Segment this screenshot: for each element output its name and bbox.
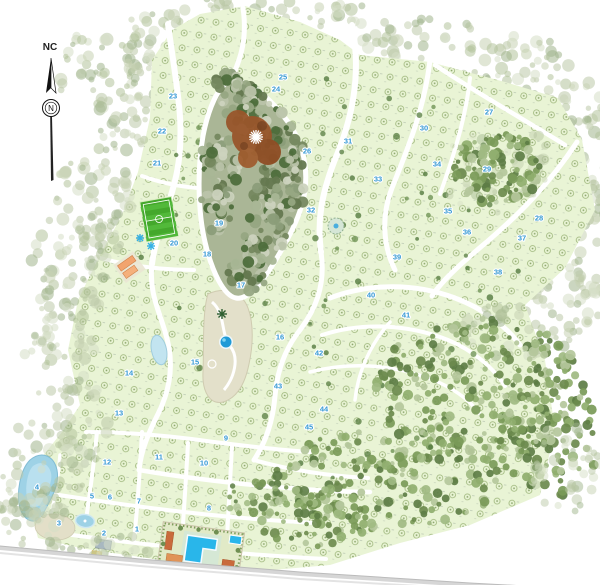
block-number-label: 15 bbox=[191, 358, 199, 367]
block-number-label: 20 bbox=[170, 239, 178, 248]
block-number-label: 34 bbox=[433, 160, 442, 169]
block-number-label: 28 bbox=[535, 214, 543, 223]
block-number-label: 44 bbox=[320, 405, 329, 414]
block-number-label: 11 bbox=[155, 453, 163, 462]
block-number-label: 6 bbox=[108, 493, 112, 502]
block-number-label: 19 bbox=[215, 219, 223, 228]
block-number-label: 26 bbox=[303, 147, 311, 156]
kids-pool bbox=[229, 535, 242, 545]
block-number-label: 25 bbox=[279, 73, 287, 82]
block-number-label: 40 bbox=[367, 291, 375, 300]
block-number-label: 7 bbox=[137, 497, 141, 506]
block-number-label: 42 bbox=[315, 349, 323, 358]
block-number-label: 2 bbox=[102, 529, 106, 538]
block-number-label: 5 bbox=[90, 492, 94, 501]
block-number-label: 21 bbox=[153, 159, 161, 168]
compass-label: NC bbox=[43, 42, 57, 53]
masterplan-sheet: 1234567891011121314151617181920212223242… bbox=[0, 0, 600, 585]
block-number-label: 31 bbox=[344, 137, 352, 146]
block-number-label: 36 bbox=[463, 228, 471, 237]
block-number-label: 33 bbox=[374, 175, 382, 184]
block-number-label: 13 bbox=[115, 409, 123, 418]
block-number-label: 38 bbox=[494, 268, 502, 277]
block-number-label: 30 bbox=[420, 124, 428, 133]
block-number-label: 12 bbox=[103, 458, 111, 467]
block-number-label: 41 bbox=[402, 311, 410, 320]
palm-icon bbox=[217, 309, 227, 319]
block-number-label: 14 bbox=[125, 369, 134, 378]
block-number-label: 45 bbox=[305, 423, 313, 432]
block-number-label: 9 bbox=[224, 434, 228, 443]
block-number-label: 10 bbox=[200, 459, 208, 468]
block-number-label: 43 bbox=[274, 382, 282, 391]
block-number-label: 29 bbox=[483, 165, 491, 174]
masterplan-map: 1234567891011121314151617181920212223242… bbox=[0, 0, 600, 585]
block-number-label: 27 bbox=[485, 108, 493, 117]
block-number-label: 23 bbox=[169, 92, 177, 101]
block-number-label: 32 bbox=[307, 206, 315, 215]
compass: NC N bbox=[43, 42, 60, 181]
lot-texture bbox=[28, 6, 595, 572]
block-number-label: 1 bbox=[135, 525, 139, 534]
soccer-field bbox=[140, 197, 178, 242]
block-number-label: 3 bbox=[57, 519, 61, 528]
block-number-label: 24 bbox=[272, 85, 281, 94]
block-number-label: 18 bbox=[203, 250, 211, 259]
block-number-label: 22 bbox=[158, 127, 166, 136]
block-number-label: 17 bbox=[237, 281, 245, 290]
clearing-star-icon bbox=[249, 130, 263, 144]
block-number-label: 16 bbox=[276, 333, 284, 342]
block-number-label: 37 bbox=[518, 234, 526, 243]
compass-needle-letter: N bbox=[48, 104, 54, 113]
block-number-label: 39 bbox=[393, 253, 401, 262]
park-round-pool bbox=[219, 335, 233, 349]
round-pond bbox=[328, 218, 344, 234]
block-number-label: 8 bbox=[207, 504, 211, 513]
block-number-label: 35 bbox=[444, 207, 452, 216]
